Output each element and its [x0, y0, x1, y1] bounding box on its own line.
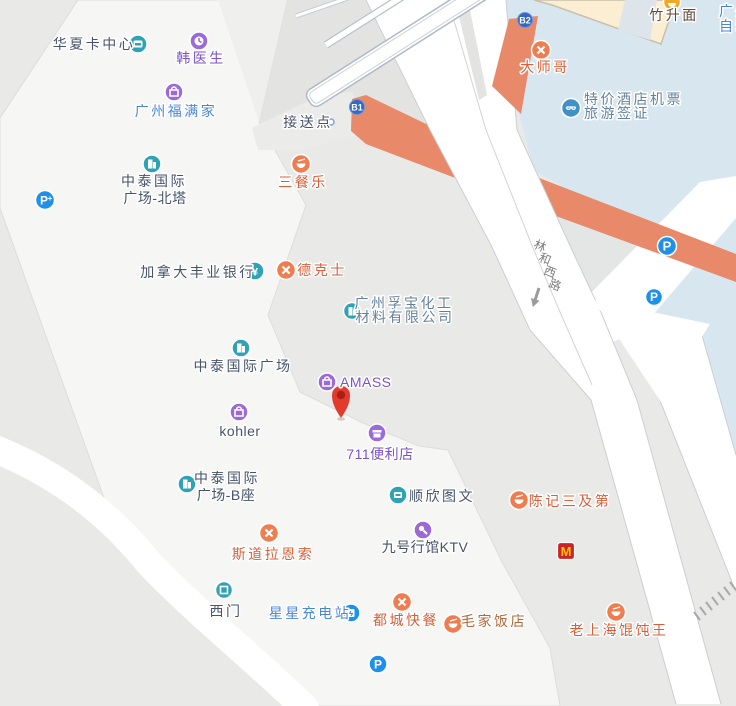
- svg-text:P: P: [374, 658, 382, 672]
- svg-text:大师哥: 大师哥: [520, 59, 570, 75]
- svg-text:德克士: 德克士: [297, 262, 347, 278]
- svg-text:星星充电站: 星星充电站: [269, 605, 352, 621]
- svg-text:三餐乐: 三餐乐: [278, 174, 328, 190]
- svg-text:广场-B座: 广场-B座: [197, 487, 256, 503]
- svg-text:陈记三及第: 陈记三及第: [529, 493, 612, 509]
- svg-text:711便利店: 711便利店: [346, 446, 413, 462]
- svg-text:P: P: [663, 239, 672, 254]
- svg-text:M: M: [561, 544, 572, 559]
- svg-text:+: +: [48, 194, 53, 203]
- svg-text:材料有限公司: 材料有限公司: [356, 309, 455, 325]
- svg-text:中泰国际广场: 中泰国际广场: [194, 358, 293, 374]
- svg-text:旅游签证: 旅游签证: [584, 105, 650, 121]
- svg-text:中泰国际: 中泰国际: [121, 173, 187, 189]
- svg-text:P: P: [650, 290, 658, 304]
- svg-text:九号行馆KTV: 九号行馆KTV: [382, 539, 469, 555]
- svg-text:加拿大丰业银行: 加拿大丰业银行: [140, 264, 256, 280]
- svg-text:华夏卡中心: 华夏卡中心: [53, 36, 136, 52]
- svg-text:老上海馄饨王: 老上海馄饨王: [570, 622, 669, 638]
- svg-text:自动化: 自动化: [719, 18, 736, 34]
- svg-text:都城快餐: 都城快餐: [373, 612, 439, 628]
- svg-text:kohler: kohler: [219, 423, 260, 439]
- svg-text:西门: 西门: [210, 603, 243, 619]
- svg-text:韩医生: 韩医生: [176, 50, 226, 66]
- svg-text:AMASS: AMASS: [340, 374, 392, 390]
- svg-text:顺欣图文: 顺欣图文: [409, 488, 475, 504]
- svg-text:B2: B2: [519, 16, 531, 26]
- svg-text:斯道拉恩索: 斯道拉恩索: [232, 546, 315, 562]
- svg-text:广场-北塔: 广场-北塔: [123, 190, 186, 206]
- svg-text:中泰国际: 中泰国际: [194, 470, 260, 486]
- svg-text:B1: B1: [351, 103, 363, 113]
- svg-text:广州福满家: 广州福满家: [135, 103, 218, 119]
- svg-text:接送点: 接送点: [283, 114, 333, 130]
- svg-text:毛家饭店: 毛家饭店: [461, 613, 527, 629]
- svg-text:竹升面: 竹升面: [649, 7, 699, 23]
- svg-text:广州: 广州: [719, 3, 736, 19]
